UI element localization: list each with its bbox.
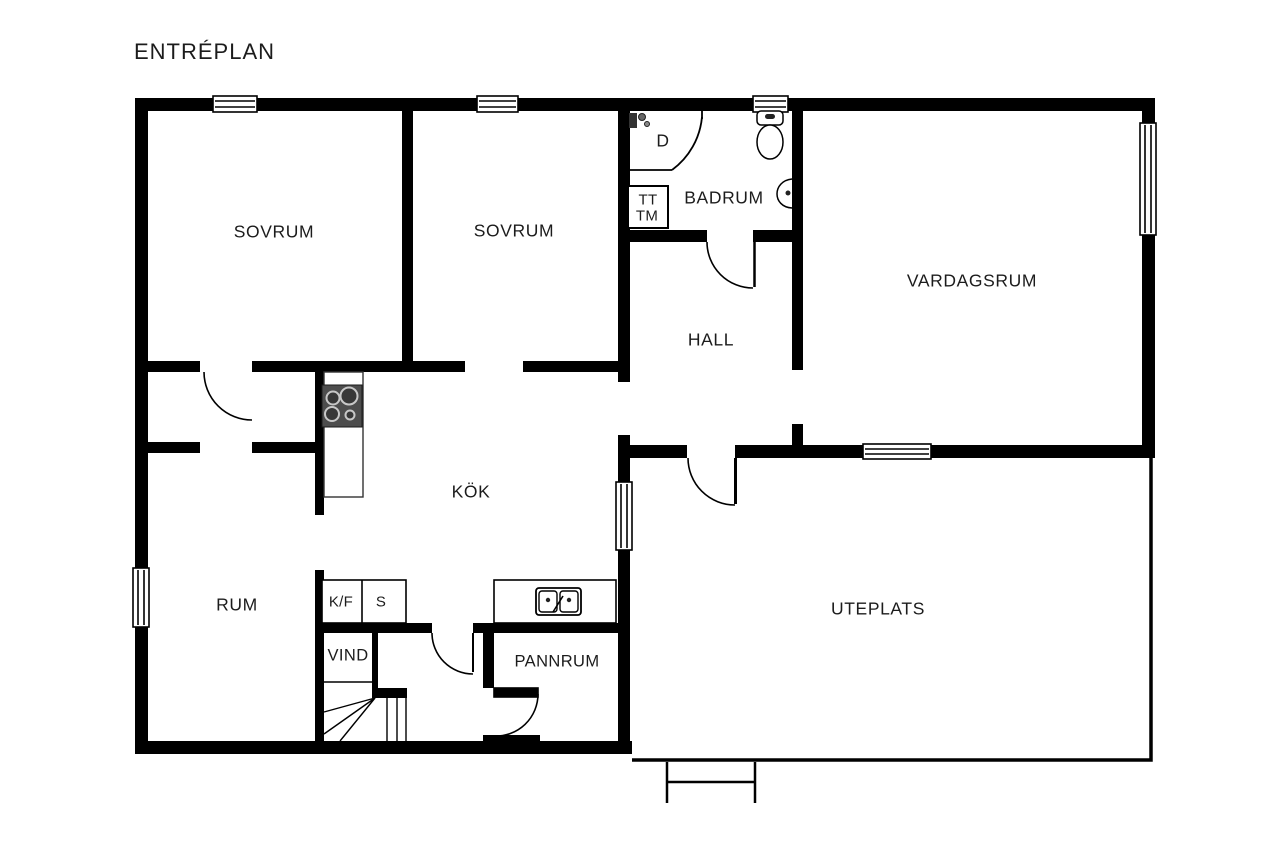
bathroom-sink-icon — [777, 179, 792, 208]
wall-kok-lower-seg1 — [315, 623, 432, 633]
wall-top — [135, 98, 1155, 111]
wall-rum-top-seg2 — [252, 442, 324, 453]
wall-sovrum-bottom-seg2 — [252, 361, 465, 372]
window-sovrum1 — [213, 96, 257, 112]
wall-pannrum-west — [483, 623, 494, 688]
window-vardagsrum-south — [863, 444, 931, 459]
door-arc-uteplats — [688, 458, 735, 505]
window-sovrum2 — [477, 96, 518, 112]
wall-badrum-hall-seg1 — [618, 230, 707, 242]
window-vardagsrum-east — [1140, 123, 1156, 235]
wall-sovrum-bottom-seg3 — [523, 361, 623, 372]
toilet-button — [765, 114, 775, 119]
wall-stair-stub — [372, 688, 407, 698]
wall-sovrum-bottom-seg1 — [140, 361, 200, 372]
door-arc-badrum — [707, 242, 753, 288]
room-label-sovrum1: SOVRUM — [234, 222, 314, 243]
room-label-uteplats: UTEPLATS — [831, 599, 925, 620]
window-badrum — [753, 96, 788, 112]
wall-bottom — [135, 741, 632, 754]
door-arc-sovrum1 — [204, 372, 252, 420]
door-leaf-pannrum — [494, 688, 538, 697]
door-arc-kok — [432, 633, 473, 674]
wall-sovrum-divider — [402, 111, 413, 366]
wall-rum-top-seg1 — [140, 442, 200, 453]
wall-vind-east — [372, 633, 378, 688]
fixture-label-shower: D — [656, 131, 669, 152]
room-label-hall: HALL — [688, 330, 734, 351]
toilet-icon — [757, 111, 783, 159]
room-label-pannrum: PANNRUM — [515, 653, 600, 672]
window-rum — [133, 568, 149, 627]
wall-vardagsrum-west — [792, 111, 803, 370]
fixture-label-tt: TT — [639, 192, 658, 209]
room-label-rum: RUM — [216, 595, 258, 616]
shower-mixer — [629, 113, 637, 128]
kitchen-sink-icon — [536, 588, 581, 615]
door-arc-pannrum — [494, 694, 538, 736]
wall-south-seg3 — [931, 445, 1155, 458]
entrance-steps — [667, 762, 755, 803]
room-label-vardagsrum: VARDAGSRUM — [907, 271, 1037, 292]
room-label-kok: KÖK — [452, 482, 491, 503]
wall-vardagsrum-west-stub — [792, 424, 803, 458]
floor-plan: ENTRÉPLAN — [0, 0, 1280, 853]
fixture-label-s: S — [376, 594, 386, 611]
window-kok — [616, 482, 632, 550]
floor-plan-drawing — [0, 0, 1280, 853]
room-label-badrum: BADRUM — [684, 188, 763, 209]
fixture-label-tm: TM — [636, 208, 658, 225]
wall-kok-lower-seg2 — [473, 623, 630, 633]
wall-left — [135, 98, 148, 754]
fixture-label-kf: K/F — [329, 594, 353, 611]
room-label-sovrum2: SOVRUM — [474, 221, 554, 242]
room-label-vind: VIND — [327, 647, 368, 666]
wall-pannrum-west-bottom — [483, 735, 540, 754]
stove-icon — [322, 385, 362, 427]
